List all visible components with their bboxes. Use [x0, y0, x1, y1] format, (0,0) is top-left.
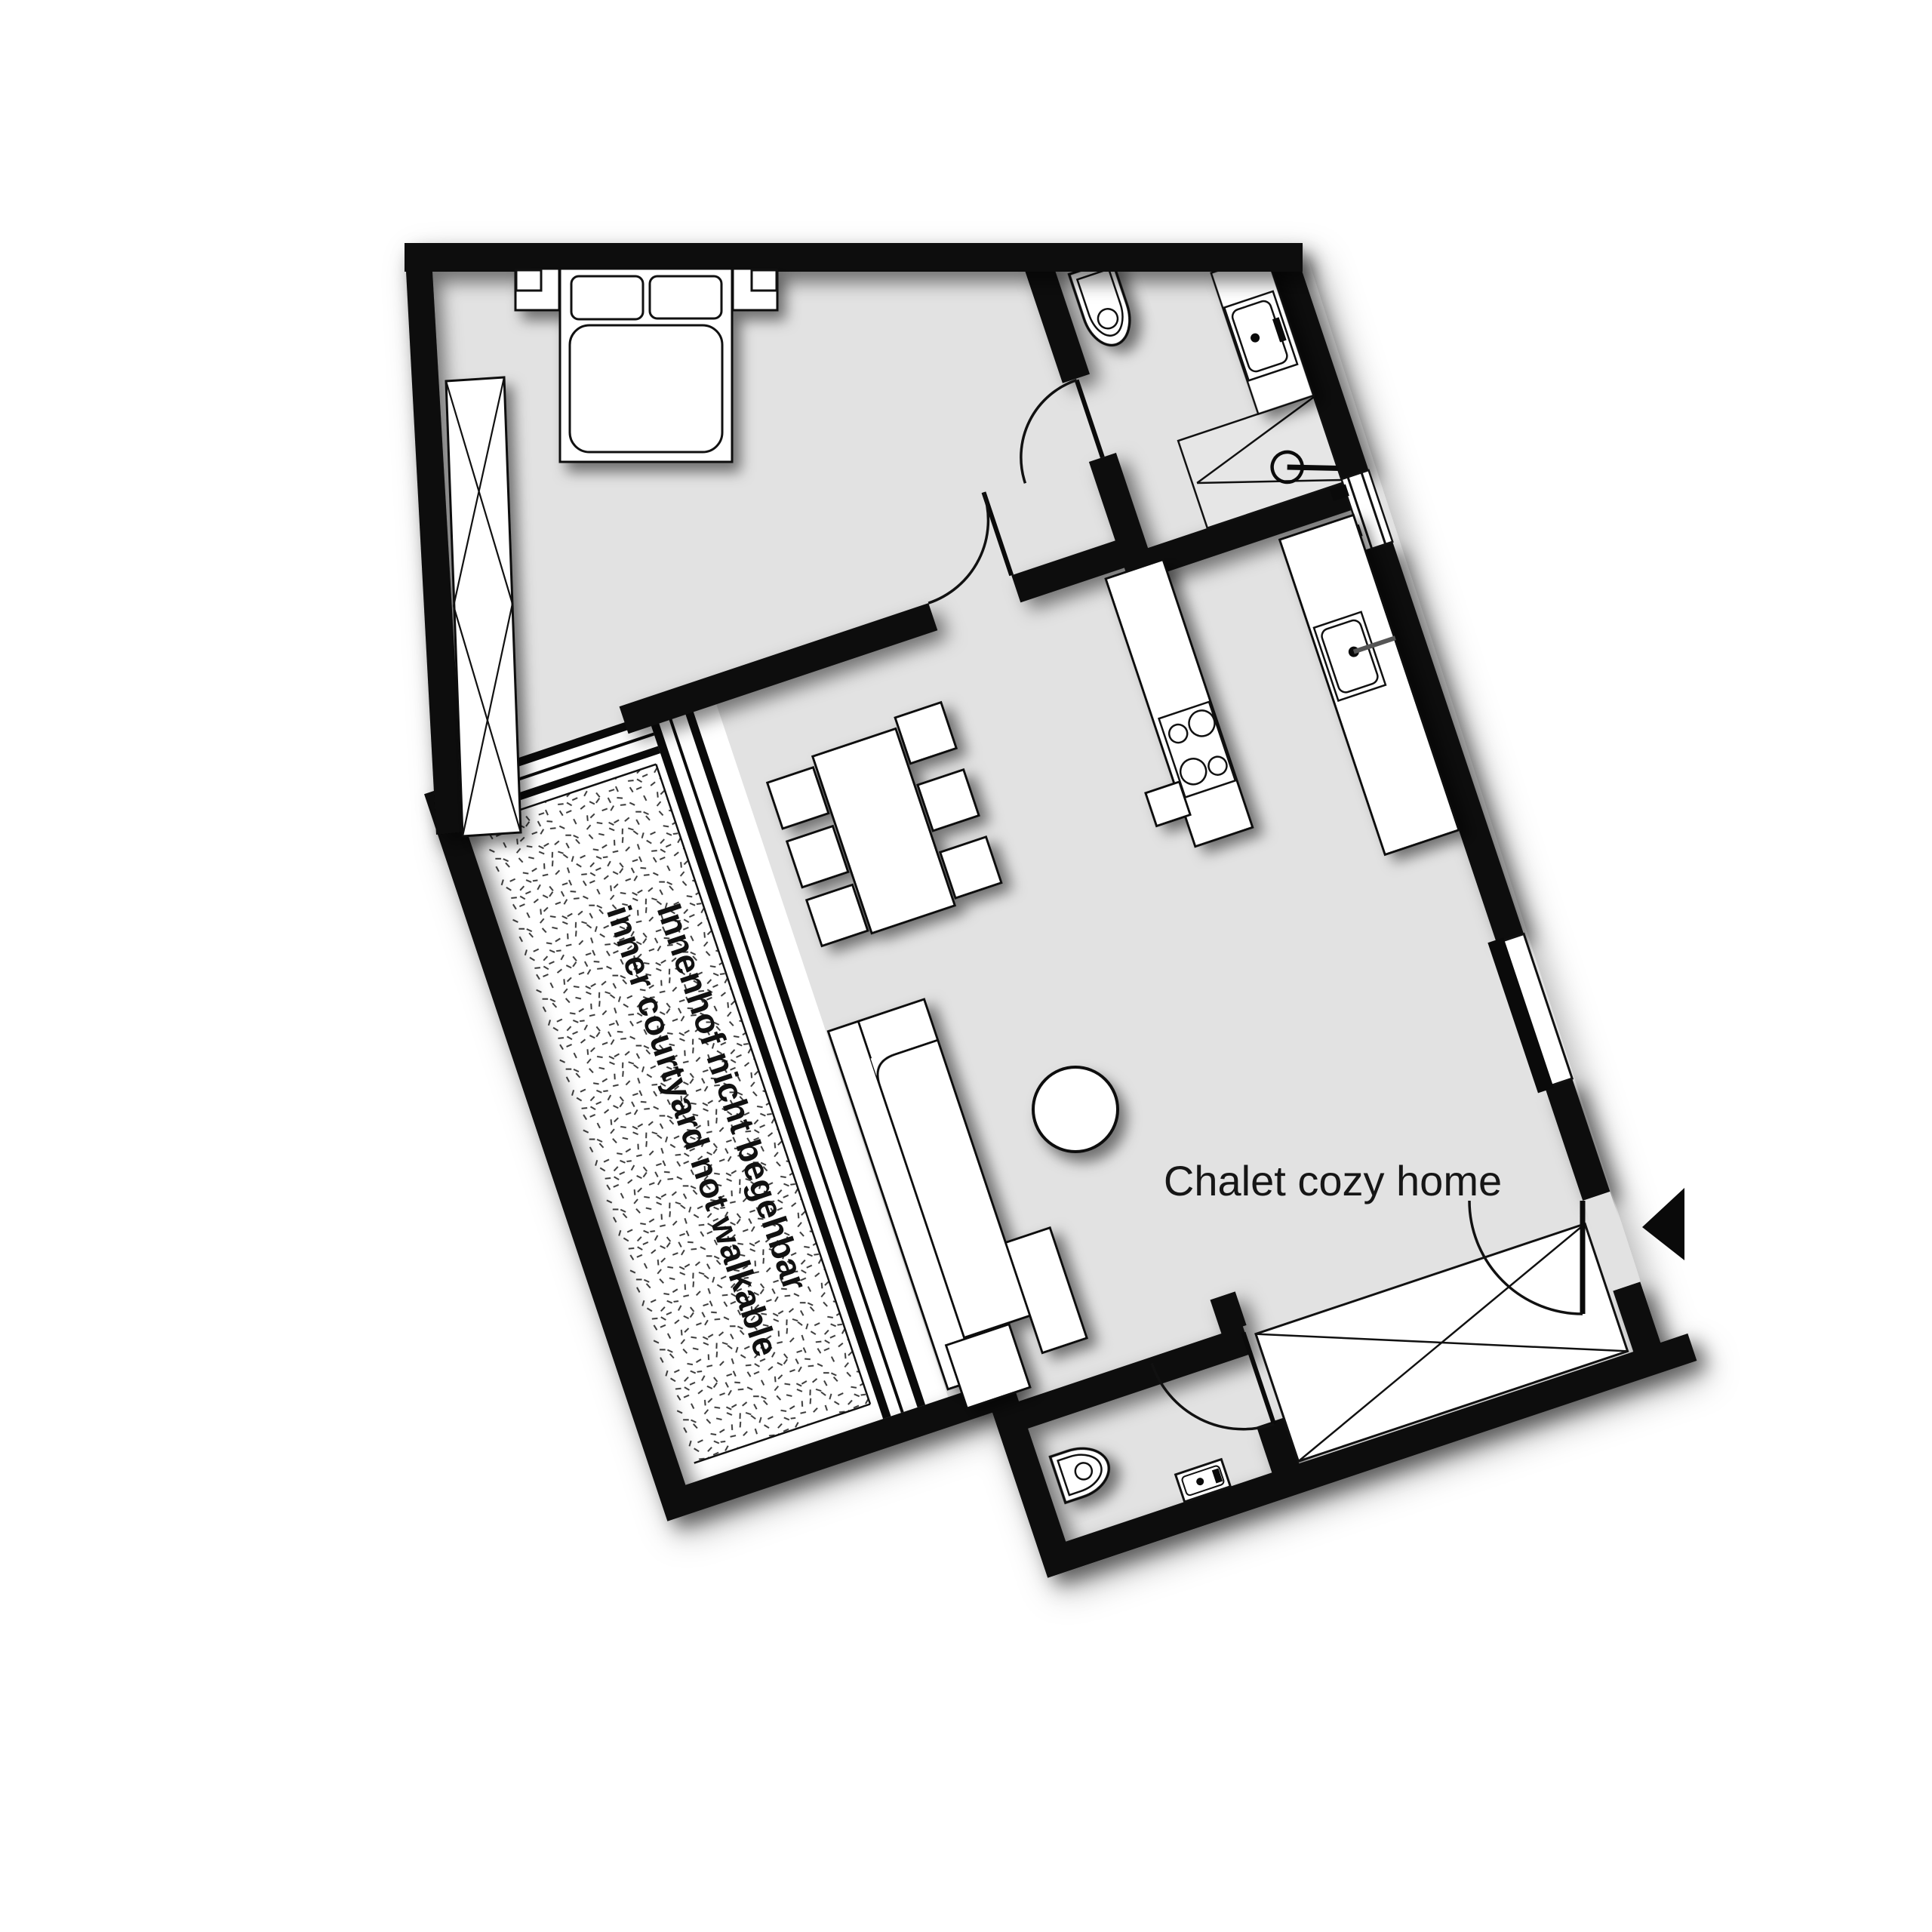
- svg-text:Chalet cozy home: Chalet cozy home: [1164, 1157, 1502, 1204]
